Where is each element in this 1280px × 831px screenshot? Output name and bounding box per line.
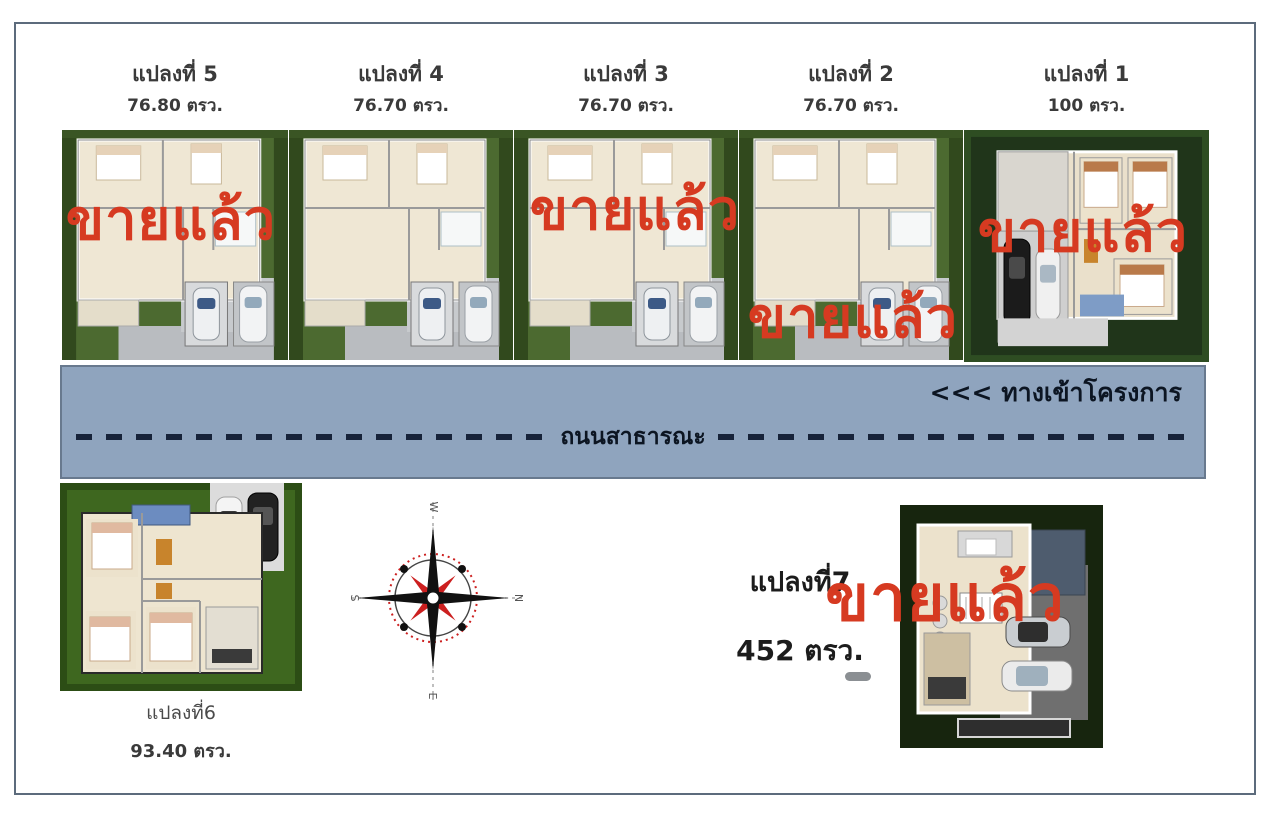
- floor-plan-image-plot-4: [289, 130, 513, 360]
- sold-overlay-plot-5: ขายแล้ว: [36, 192, 306, 251]
- sold-overlay-plot-3: ขายแล้ว: [500, 182, 770, 241]
- road-dashes-right: [718, 434, 1190, 440]
- plot-1-title: แปลงที่ 1: [964, 62, 1209, 86]
- road-centerline: ถนนสาธารณะ: [76, 419, 1190, 455]
- road-name-label: ถนนสาธารณะ: [560, 419, 705, 455]
- project-entrance-label: <<< ทางเข้าโครงการ: [930, 373, 1182, 413]
- plot-3-area: 76.70 ตรว.: [514, 96, 738, 116]
- small-dash-marker: [845, 672, 871, 681]
- floor-plan-image-plot-3: [514, 130, 738, 360]
- plot-6-area: 93.40 ตรว.: [60, 736, 302, 765]
- plot-2-area: 76.70 ตรว.: [739, 96, 963, 116]
- road-dashes-left: [76, 434, 548, 440]
- public-road-band: <<< ทางเข้าโครงการ ถนนสาธารณะ: [60, 365, 1206, 479]
- plot-4-title: แปลงที่ 4: [289, 62, 513, 86]
- compass-east-letter: E: [426, 693, 439, 700]
- compass-south-letter: S: [348, 595, 361, 602]
- sold-overlay-plot-7: ขายแล้ว: [810, 566, 1080, 633]
- plot-5-area: 76.80 ตรว.: [62, 96, 288, 116]
- plot-2-title: แปลงที่ 2: [739, 62, 963, 86]
- compass-north-letter: N: [512, 594, 525, 602]
- plot-3-title: แปลงที่ 3: [514, 62, 738, 86]
- plot-card-4: แปลงที่ 4 76.70 ตรว.: [289, 62, 513, 360]
- compass-west-letter: W: [427, 502, 440, 513]
- plot-4-area: 76.70 ตรว.: [289, 96, 513, 116]
- plot-5-title: แปลงที่ 5: [62, 62, 288, 86]
- site-plan-canvas: แปลงที่ 5 76.80 ตรว. แปลงที่ 4 76.70 ตรว…: [0, 0, 1280, 831]
- floor-plan-image-plot-6: [60, 483, 302, 691]
- plot-1-area: 100 ตรว.: [964, 96, 1209, 116]
- sold-overlay-plot-1: ขายแล้ว: [948, 204, 1218, 263]
- compass-rose: W N E S: [345, 496, 530, 708]
- sold-overlay-plot-2: ขายแล้ว: [718, 290, 988, 349]
- plot-6-title: แปลงที่6: [60, 698, 302, 728]
